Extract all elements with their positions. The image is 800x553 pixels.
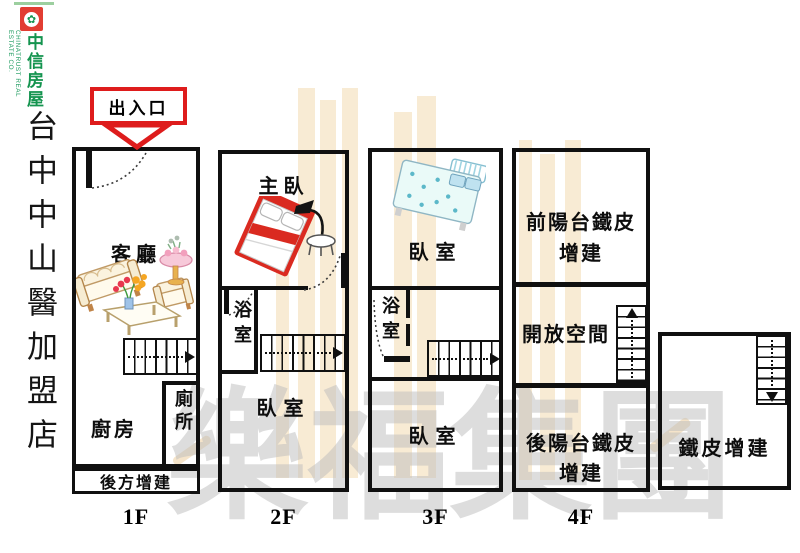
wall [368, 286, 503, 290]
stair-direction-line [265, 352, 331, 354]
room-label-bath-3f: 浴室 [376, 296, 402, 346]
door-arc-icon [302, 252, 344, 292]
room-label-toilet: 廁所 [169, 389, 195, 435]
lamp-illustration [288, 198, 340, 258]
room-label-kitchen: 廚房 [82, 413, 146, 442]
annex-1f: 後方增建 [72, 468, 200, 494]
stair-direction-line [432, 358, 488, 360]
wall [512, 282, 650, 287]
wall [162, 381, 196, 385]
stair-direction-line [128, 356, 183, 358]
annex-label: 後方增建 [100, 469, 172, 493]
brand-logo: CHINATRUST REAL ESTATE CO. ✿ 中信房屋 [0, 0, 70, 120]
floorplan-sheet: 樂福集團 CHINATRUST REAL ESTATE CO. ✿ 中信房屋 台… [0, 0, 800, 553]
sofa-set-illustration [76, 228, 198, 338]
floor-label-3f: 3F [368, 504, 503, 530]
floor-label-1f: 1F [72, 504, 200, 530]
room-label-front-balcony: 前陽台鐵皮增建 [524, 207, 638, 269]
stair-direction-line [771, 340, 773, 390]
room-label-bedroom-3f-bottom: 臥室 [368, 420, 503, 449]
room-label-master: 主臥 [218, 170, 349, 199]
entrance-sign: 出入口 [90, 87, 187, 125]
wall [162, 381, 166, 464]
store-name: 台中中山醫加盟店 [17, 110, 62, 462]
staircase-rooftop [756, 335, 787, 405]
chinatrust-logo-icon: ✿ [20, 7, 43, 31]
floor-label-4f: 4F [512, 504, 650, 530]
stair-arrow-icon [333, 347, 343, 359]
staircase-2f [260, 334, 346, 372]
room-label-bedroom-3f-top: 臥室 [368, 236, 503, 265]
wall [218, 370, 258, 374]
floor-label-2f: 2F [218, 504, 349, 530]
stair-arrow-icon [766, 392, 778, 402]
bed-illustration-teal [388, 154, 486, 238]
stair-arrow-icon [626, 308, 638, 318]
logo-flower-glyph: ✿ [24, 12, 39, 27]
wall [512, 383, 650, 388]
staircase-3f [427, 340, 503, 377]
stair-direction-line [631, 320, 633, 378]
wall [368, 377, 503, 381]
room-label-open-space: 開放空間 [514, 318, 618, 347]
entrance-arrow-icon [98, 123, 176, 150]
door-arc-icon [84, 148, 168, 196]
brand-name-en: CHINATRUST REAL ESTATE CO. [7, 30, 21, 120]
room-label-rear-balcony: 後陽台鐵皮增建 [524, 428, 638, 488]
brand-name-zh: 中信房屋 [21, 33, 46, 109]
room-label-rooftop: 鐵皮增建 [658, 432, 791, 461]
room-label-bath-2f: 浴室 [228, 300, 254, 350]
logo-frame-line [14, 2, 54, 5]
staircase-4f [616, 305, 647, 383]
room-label-bedroom-2f: 臥室 [218, 392, 349, 421]
stair-arrow-icon [185, 351, 195, 363]
stair-arrow-icon [490, 353, 500, 365]
staircase-1f [123, 338, 198, 375]
